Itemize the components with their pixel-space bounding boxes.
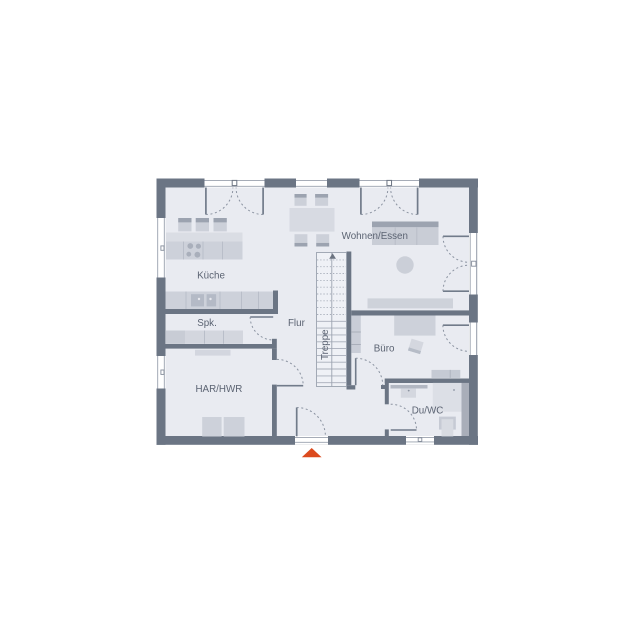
svg-text:HAR/HWR: HAR/HWR — [195, 384, 242, 395]
svg-text:Spk.: Spk. — [197, 318, 217, 329]
svg-text:Treppe: Treppe — [320, 329, 331, 360]
svg-text:Flur: Flur — [288, 318, 306, 329]
svg-text:Büro: Büro — [374, 344, 395, 355]
svg-text:Du/WC: Du/WC — [412, 405, 444, 416]
svg-text:Wohnen/Essen: Wohnen/Essen — [342, 231, 408, 242]
svg-text:Küche: Küche — [197, 271, 225, 282]
